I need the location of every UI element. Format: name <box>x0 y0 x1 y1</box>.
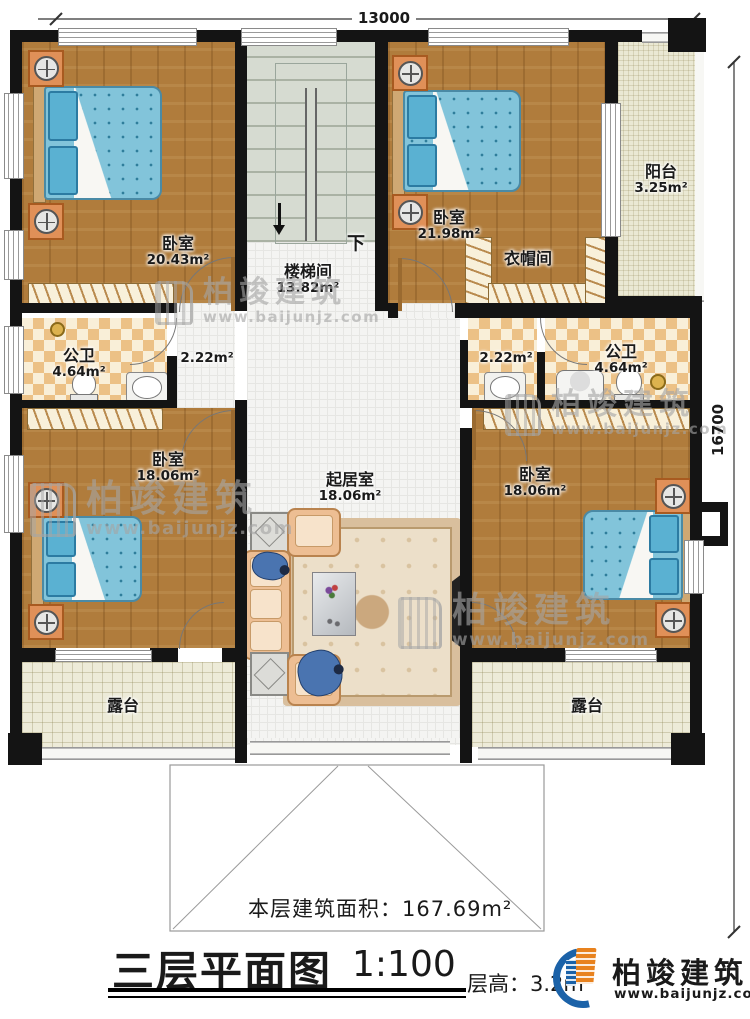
toilet-brush-icon <box>650 374 666 390</box>
floor-height-label: 层高： <box>467 972 530 996</box>
wall-br-bottom-c <box>655 648 702 662</box>
lamp-icon <box>398 61 423 86</box>
room-area: 4.64m² <box>594 361 647 377</box>
railing-terrace-right <box>478 747 674 760</box>
bed-pillows <box>48 91 78 195</box>
label-cloakroom: 衣帽间 <box>504 250 552 268</box>
wall-bl-bottom-b <box>150 648 178 662</box>
lamp-icon <box>34 56 59 81</box>
nightstand-tl-1 <box>28 50 64 87</box>
room-name: 公卫 <box>52 347 105 365</box>
wall-tr-bottom-stub <box>388 303 398 318</box>
room-area: 20.43m² <box>147 253 210 269</box>
bed-tl <box>44 86 162 200</box>
wall-tl-stair <box>235 30 247 311</box>
window-top-2 <box>241 28 337 46</box>
label-hall-right: 2.22m² <box>479 351 532 367</box>
pillar-bottom-right <box>671 733 705 765</box>
window-top-3 <box>428 28 569 46</box>
room-area: 18.06m² <box>137 469 200 485</box>
bed-sheet <box>72 518 118 600</box>
door-leaf-bedroom-tl <box>231 257 235 311</box>
room-name: 卧室 <box>137 451 200 469</box>
window-terrace-bl <box>55 650 152 662</box>
lamp-icon <box>661 484 686 509</box>
room-name: 楼梯间 <box>277 263 340 281</box>
stair-direction-label: 下 <box>347 235 365 256</box>
lamp-icon <box>34 488 59 513</box>
floor-area-note: 本层建筑面积：167.69m² <box>248 893 512 923</box>
drawing-scale: 1:100 <box>352 944 456 985</box>
wall-bathL-hall <box>167 356 177 408</box>
room-area: 3.25m² <box>634 181 687 197</box>
sink-left <box>126 372 168 403</box>
bed-bl <box>42 516 142 602</box>
label-bedroom-tl: 卧室 20.43m² <box>147 235 210 269</box>
dimension-width: 13000 <box>352 8 416 28</box>
side-table-top <box>250 512 289 553</box>
window-left-1 <box>4 93 24 179</box>
nightstand-tr-1 <box>392 55 428 91</box>
wall-bathL-bottom <box>10 400 177 408</box>
stair-center-rail <box>305 88 317 241</box>
room-area: 18.06m² <box>504 484 567 500</box>
window-terrace-br <box>565 650 657 662</box>
room-name: 公卫 <box>594 343 647 361</box>
window-right-1 <box>684 540 704 594</box>
brand-logo-building-icon <box>573 948 596 984</box>
nightstand-bl-1 <box>28 482 64 518</box>
dimension-height: 16700 <box>708 400 728 460</box>
title-underline <box>108 988 466 998</box>
bed-pillows <box>649 515 679 595</box>
wall-bathR-bottom <box>460 400 690 408</box>
window-left-4 <box>4 455 24 533</box>
room-name: 起居室 <box>319 471 382 489</box>
wall-tr-bottom <box>455 303 690 318</box>
floor-area-value: 167.69m² <box>402 897 512 921</box>
wall-bl-bottom-a <box>10 648 56 662</box>
floor-area-label: 本层建筑面积： <box>248 897 402 921</box>
nightstand-tl-2 <box>28 203 64 240</box>
label-stairwell: 楼梯间 13.82m² <box>277 263 340 297</box>
room-name: 卧室 <box>418 209 481 227</box>
label-stair-direction: 下 <box>347 235 365 256</box>
room-area: 2.22m² <box>180 351 233 367</box>
ceiling-lamp-left-icon <box>50 322 65 337</box>
label-bath-left: 公卫 4.64m² <box>52 347 105 381</box>
stair-arrow-head-icon <box>273 225 285 235</box>
wall-br-bottom-b <box>515 648 565 662</box>
railing-balcony-right <box>695 34 704 302</box>
room-name: 阳台 <box>634 163 687 181</box>
lamp-icon <box>34 209 59 234</box>
label-bedroom-br: 卧室 18.06m² <box>504 466 567 500</box>
side-table-bottom <box>250 652 289 696</box>
label-terrace-right: 露台 <box>571 697 603 715</box>
sink-right <box>484 372 526 403</box>
bed-tr <box>403 90 521 192</box>
label-bedroom-tr: 卧室 21.98m² <box>418 209 481 243</box>
label-bath-right: 公卫 4.64m² <box>594 343 647 377</box>
pillar-right-hole <box>702 512 720 536</box>
room-name: 衣帽间 <box>504 250 552 268</box>
bed-sheet <box>607 512 653 598</box>
room-name: 露台 <box>571 697 603 715</box>
wall-tl-bottom <box>10 303 177 313</box>
door-leaf-bedroom-tr <box>398 258 402 311</box>
label-hall-left: 2.22m² <box>180 351 233 367</box>
label-terrace-left: 露台 <box>107 697 139 715</box>
room-area: 21.98m² <box>418 227 481 243</box>
label-bedroom-bl: 卧室 18.06m² <box>137 451 200 485</box>
railing-living-south <box>250 741 450 755</box>
wall-bl-bottom-c <box>222 648 247 662</box>
room-area: 4.64m² <box>52 365 105 381</box>
nightstand-br-1 <box>655 478 691 514</box>
wall-br-bottom-a <box>472 648 515 662</box>
brand-logo-building2-icon <box>566 960 576 986</box>
wall-bl-right <box>235 400 247 763</box>
room-name: 卧室 <box>504 466 567 484</box>
room-name: 露台 <box>107 697 139 715</box>
bed-br <box>583 510 683 600</box>
window-left-3 <box>4 326 24 394</box>
door-leaf-bedroom-br <box>472 410 476 460</box>
railing-balcony-top <box>642 32 668 43</box>
wardrobe-bedroom-bl <box>27 408 163 430</box>
lamp-icon <box>661 608 686 633</box>
railing-terrace-left <box>28 747 235 760</box>
wall-washR-left <box>460 340 468 408</box>
bed-pillows <box>46 521 76 597</box>
lamp-icon <box>34 610 59 635</box>
nightstand-br-2 <box>655 602 691 638</box>
brand-url: www.baijunjz.com <box>614 986 750 1002</box>
stair-arrow-stem <box>278 203 281 225</box>
floor-plan-page: { "plan": { "dim_top": "13000", "dim_rig… <box>0 0 750 1013</box>
room-name: 卧室 <box>147 235 210 253</box>
window-top-1 <box>58 28 197 46</box>
armchair-top <box>287 508 341 557</box>
pillar-top-right <box>668 18 706 52</box>
pillar-bottom-left <box>8 733 42 765</box>
wall-stair-tr <box>375 30 388 311</box>
label-balcony: 阳台 3.25m² <box>634 163 687 197</box>
door-leaf-bedroom-bl <box>231 410 235 460</box>
nightstand-bl-2 <box>28 604 64 640</box>
coffee-table <box>312 572 356 636</box>
bed-pillows <box>407 95 437 187</box>
wall-br-left <box>460 428 472 763</box>
room-area: 2.22m² <box>479 351 532 367</box>
bed-sheet <box>433 92 479 190</box>
label-living: 起居室 18.06m² <box>319 471 382 505</box>
window-balcony-door <box>601 103 621 237</box>
room-area: 13.82m² <box>277 281 340 297</box>
bed-sheet <box>74 88 120 198</box>
window-left-2 <box>4 230 24 280</box>
room-area: 18.06m² <box>319 489 382 505</box>
